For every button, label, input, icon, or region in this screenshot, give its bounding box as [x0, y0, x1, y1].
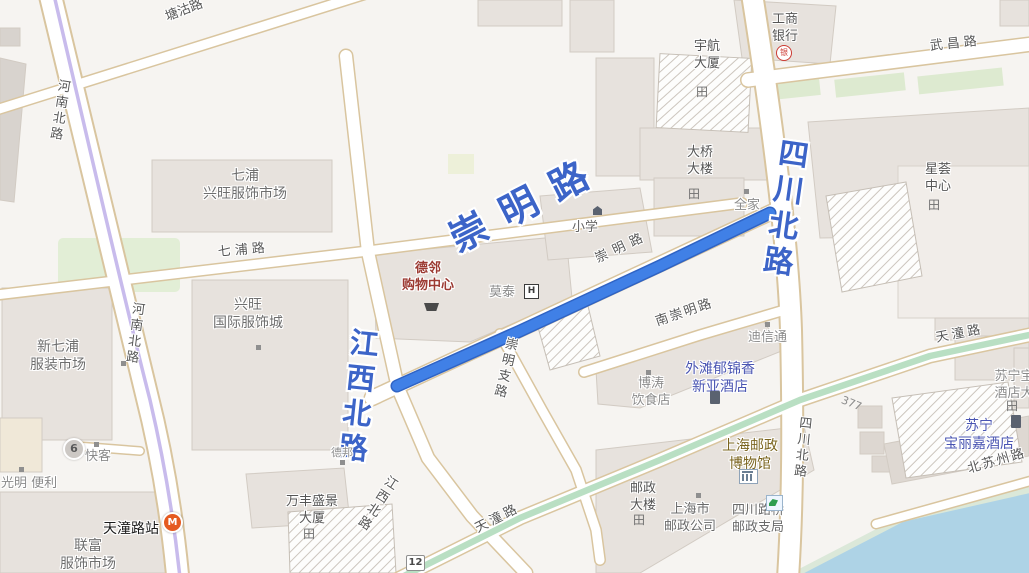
poi-wanfeng-tower[interactable]: 万丰盛景 大厦: [280, 494, 344, 528]
bus-stop-badge: 6: [63, 438, 85, 460]
poi-botao-restaurant[interactable]: 博涛 饮食店: [627, 376, 675, 410]
building-icon: 田: [1006, 400, 1018, 412]
poi-tiantong-road-station[interactable]: 天潼路站: [103, 520, 159, 538]
road-number-badge: 12: [406, 555, 425, 571]
poi-primary-school[interactable]: 小学: [572, 220, 598, 237]
poi-shanghai-post-company[interactable]: 上海市 邮政公司: [658, 502, 722, 536]
building-icon: 田: [696, 86, 708, 98]
poi-xinghui-center[interactable]: 星荟 中心: [914, 162, 962, 196]
store-dot-icon: [765, 322, 770, 327]
post-office-icon: [766, 495, 783, 511]
poi-dixintong[interactable]: 迪信通: [748, 330, 787, 347]
store-dot-icon: [340, 460, 345, 465]
poi-debang[interactable]: 德邦: [331, 446, 353, 460]
store-dot-icon: [121, 361, 126, 366]
poi-daqiao-building[interactable]: 大桥 大楼: [674, 145, 726, 179]
poi-xinqipu-market[interactable]: 新七浦 服装市场: [8, 338, 108, 374]
river-suzhou-creek: [792, 489, 1029, 573]
hotel-icon: [710, 391, 720, 404]
store-dot-icon: [256, 345, 261, 350]
poi-suning-edge-label[interactable]: 苏宁宝 酒店大: [986, 369, 1029, 403]
building-icon: 田: [928, 199, 940, 211]
building-icon: 田: [633, 514, 645, 526]
map-canvas[interactable]: 塘沽路 河南北路 河南北路 七浦路 武昌路 崇明路 崇明支路 南崇明路 江西北路…: [0, 0, 1029, 573]
store-dot-icon: [646, 370, 651, 375]
store-dot-icon: [696, 493, 701, 498]
store-dot-icon: [94, 442, 99, 447]
building-icon: 田: [688, 188, 700, 200]
poi-xingwang-intl-city[interactable]: 兴旺 国际服饰城: [196, 296, 300, 332]
poi-kuaike-store[interactable]: 快客: [85, 449, 111, 466]
hotel-h-icon: H: [524, 284, 539, 299]
poi-guangming-store[interactable]: 光明 便利: [1, 476, 57, 493]
poi-motai-hotel[interactable]: 莫泰: [489, 285, 515, 302]
store-dot-icon: [19, 467, 24, 472]
poi-post-museum[interactable]: 上海邮政 博物馆: [720, 437, 780, 473]
hotel-icon: [1011, 415, 1021, 428]
poi-delin-mall[interactable]: 德邻 购物中心: [388, 261, 468, 295]
metro-station-icon[interactable]: M: [162, 512, 183, 533]
poi-waitan-xinya-hotel[interactable]: 外滩郁锦香 新亚酒店: [676, 360, 764, 396]
poi-icbc-bank[interactable]: 工商 银行: [764, 12, 806, 46]
building-icon: 田: [303, 528, 315, 540]
poi-qipu-xingwang-market[interactable]: 七浦 兴旺服饰市场: [193, 167, 297, 203]
poi-yuhang-tower[interactable]: 宇航 大厦: [680, 39, 734, 73]
poi-post-tower[interactable]: 邮政 大楼: [624, 481, 662, 515]
store-dot-icon: [744, 189, 749, 194]
poi-familymart[interactable]: 全家: [734, 198, 760, 215]
poi-lianfu-market[interactable]: 联富 服饰市场: [40, 537, 136, 573]
museum-icon: [739, 469, 758, 484]
bank-icon: 银: [776, 45, 792, 61]
